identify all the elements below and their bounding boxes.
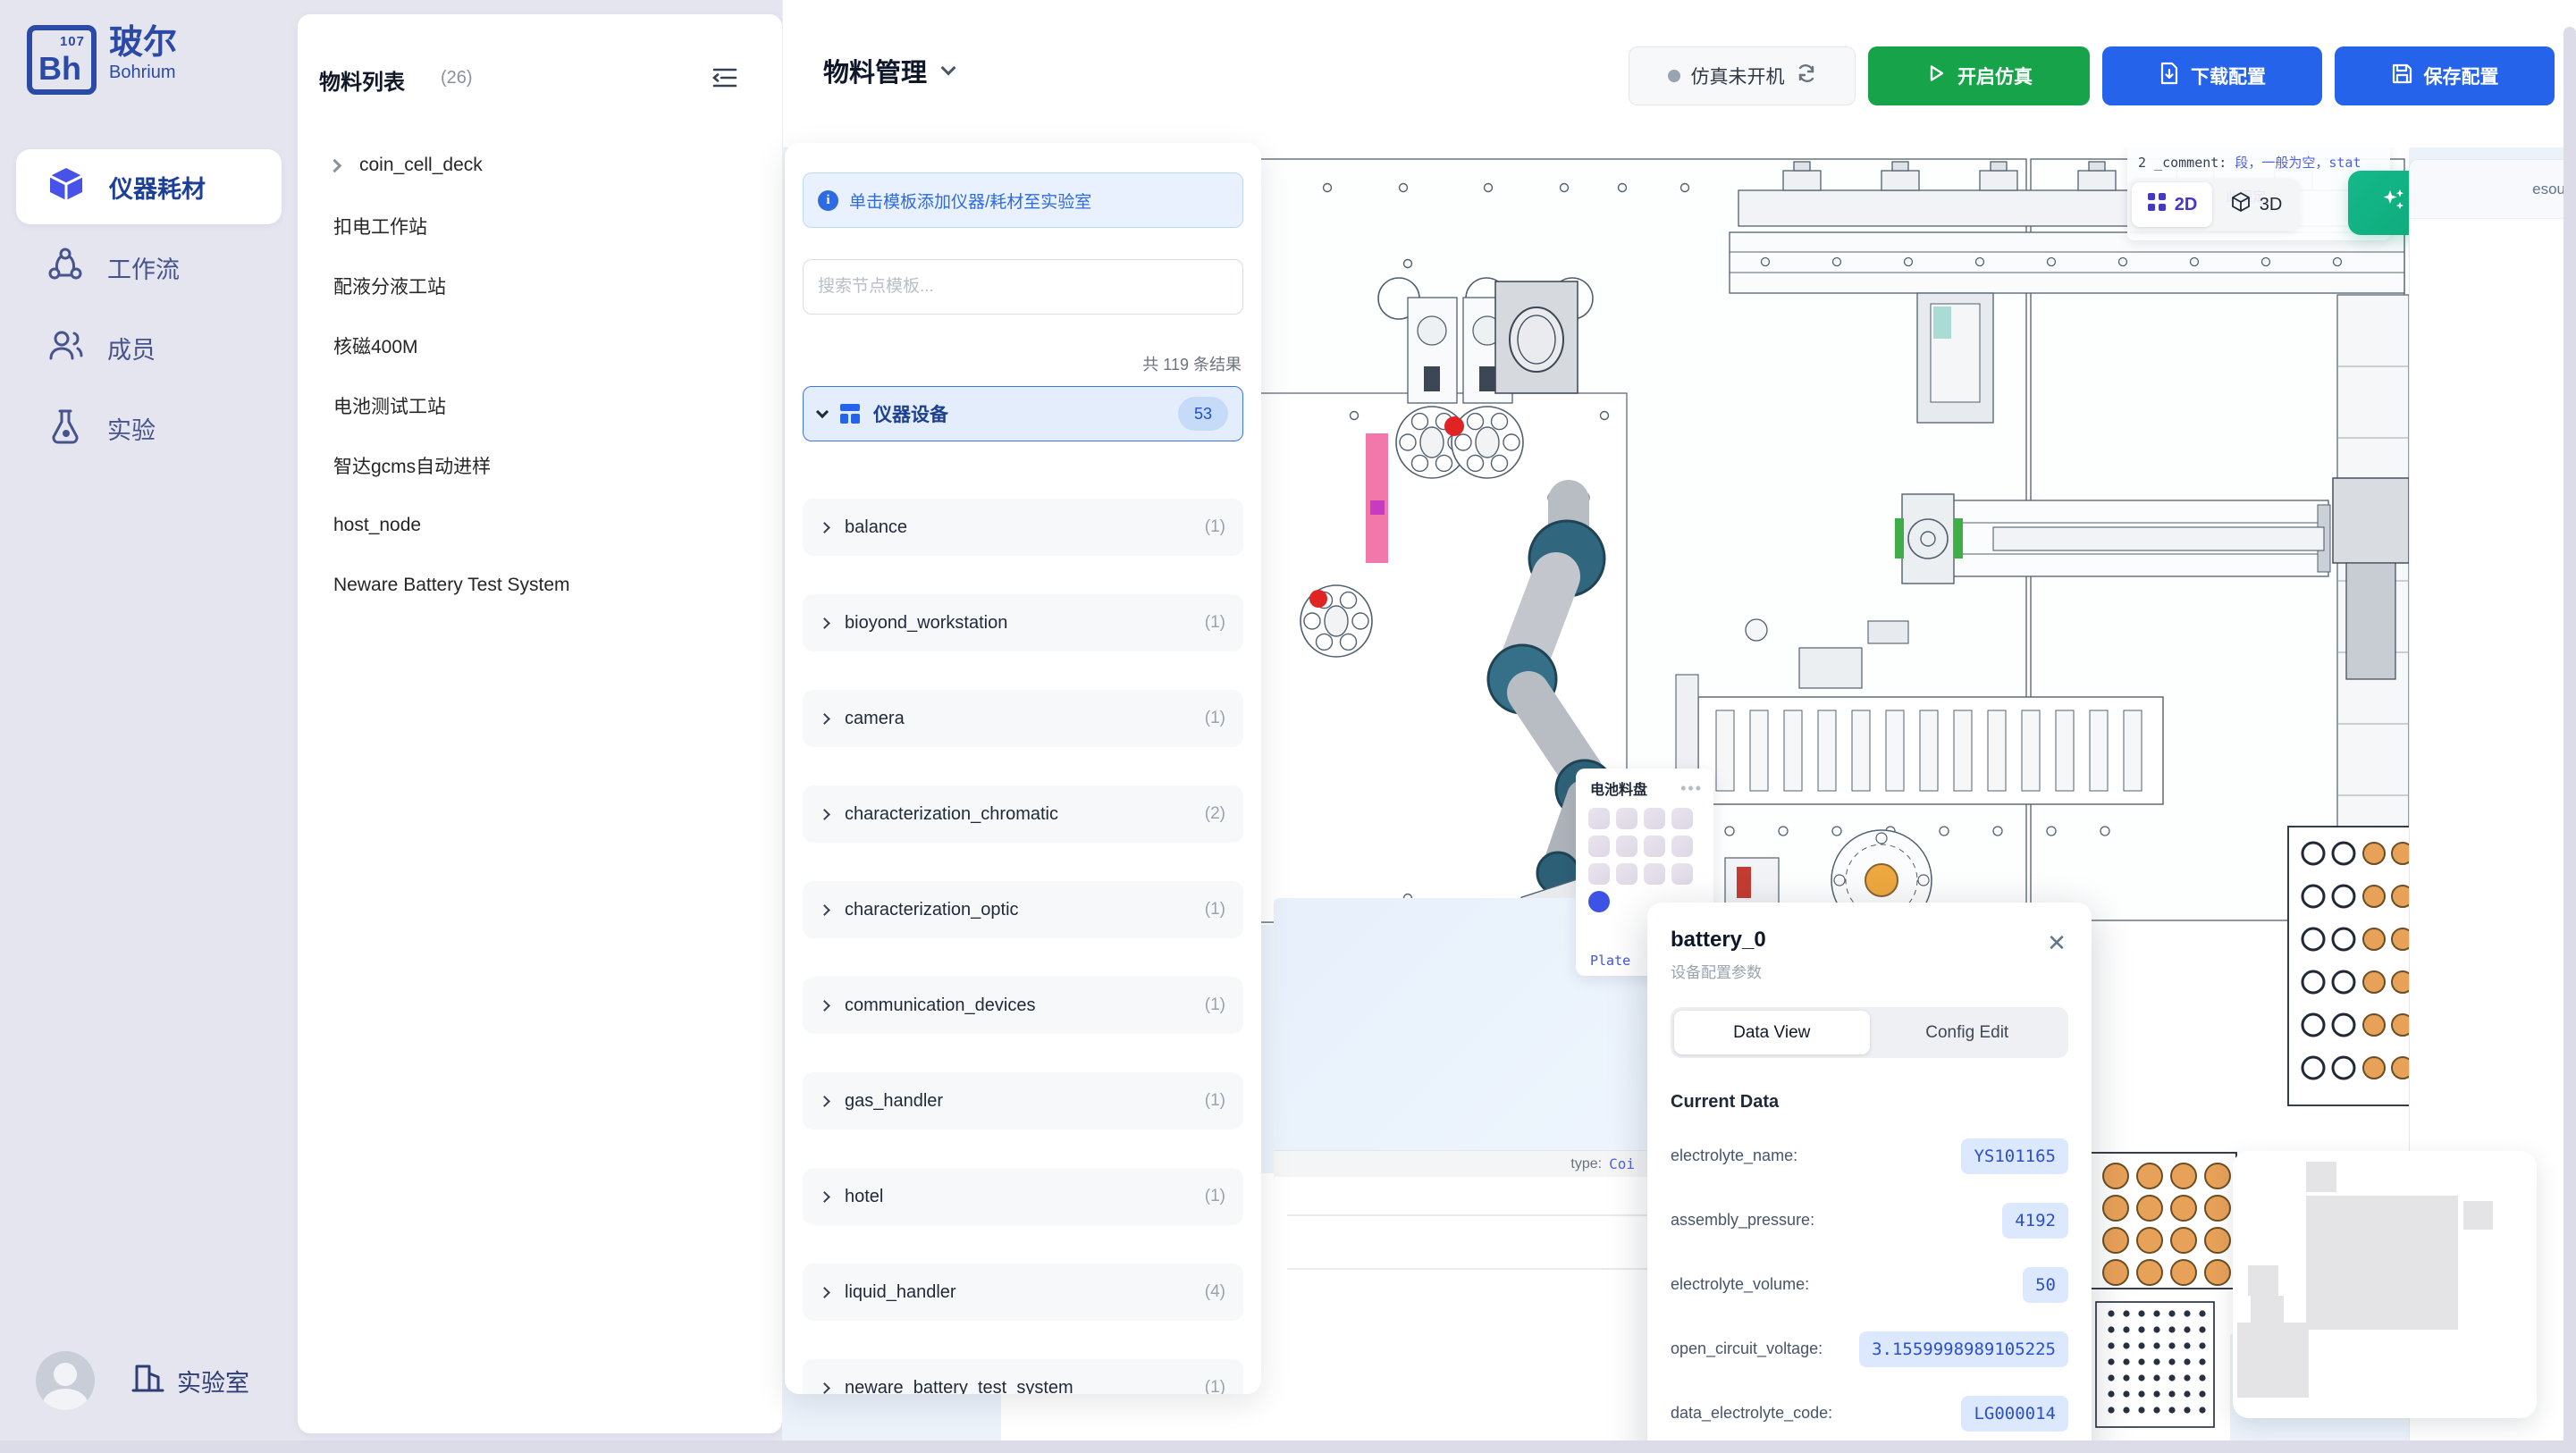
material-item-label: host_node [333, 515, 421, 536]
instruments-icon [840, 404, 860, 424]
chevron-right-icon [819, 1000, 830, 1012]
battery-slot[interactable] [1644, 808, 1665, 829]
battery-slot[interactable] [1644, 836, 1665, 857]
hint-banner: i 单击模板添加仪器/耗材至实验室 [803, 172, 1243, 228]
result-count: 共 119 条结果 [1142, 352, 1242, 375]
material-item[interactable]: 扣电工作站 [319, 207, 761, 245]
lab-link[interactable]: 实验室 [130, 1361, 249, 1401]
battery-slot[interactable] [1671, 836, 1693, 857]
sidebar-item-members[interactable]: 成员 [16, 310, 282, 385]
group-count-badge: 53 [1178, 397, 1228, 431]
material-item-label: 扣电工作站 [333, 213, 427, 239]
material-item[interactable]: Neware Battery Test System [319, 567, 761, 604]
group-label: 仪器设备 [873, 400, 1165, 427]
download-config-button[interactable]: 下载配置 [2102, 46, 2322, 105]
materials-panel: 物料列表 (26) coin_cell_deck 扣电工作站 配液分液工站 核磁… [298, 14, 782, 1433]
category-liquid-handler[interactable]: liquid_handler (4) [803, 1264, 1243, 1321]
chevron-right-icon [819, 713, 830, 725]
tab-data-view[interactable]: Data View [1674, 1011, 1870, 1054]
material-item[interactable]: 核磁400M [319, 327, 761, 365]
data-row-label: open_circuit_voltage: [1671, 1340, 1823, 1358]
category-characterization-chromatic[interactable]: characterization_chromatic (2) [803, 785, 1243, 843]
battery-slot-grid [1576, 802, 1713, 912]
sidebar-item-label: 工作流 [107, 250, 180, 285]
category-count: (1) [1205, 995, 1225, 1015]
current-data-heading: Current Data [1671, 1092, 2068, 1113]
building-icon [130, 1361, 164, 1401]
download-config-label: 下载配置 [2191, 63, 2266, 89]
tab-config-edit[interactable]: Config Edit [1870, 1011, 2066, 1054]
chevron-down-icon [941, 61, 956, 76]
status-label: 仿真未开机 [1691, 63, 1785, 89]
template-panel: i 单击模板添加仪器/耗材至实验室 共 119 条结果 仪器设备 53 bala… [785, 143, 1261, 1394]
right-panel-clipped-text: esou [2532, 181, 2565, 198]
cube-icon [46, 164, 86, 210]
refresh-icon[interactable] [1796, 63, 1817, 89]
save-config-label: 保存配置 [2424, 63, 2499, 89]
category-count: (1) [1205, 1378, 1225, 1394]
plate-label: Plate [1590, 953, 1630, 969]
sidebar-item-label: 实验 [107, 411, 156, 446]
category-label: communication_devices [845, 995, 1189, 1016]
category-camera[interactable]: camera (1) [803, 690, 1243, 747]
page-title[interactable]: 物料管理 [823, 52, 954, 89]
grid-2d-icon [2147, 192, 2167, 217]
battery-tray-title: 电池料盘 [1590, 777, 1647, 799]
category-label: balance [845, 517, 1189, 538]
category-characterization-optic[interactable]: characterization_optic (1) [803, 881, 1243, 938]
logo-symbol: Bh [38, 50, 81, 88]
view-2d-label: 2D [2175, 195, 2198, 215]
material-item[interactable]: 智达gcms自动进样 [319, 447, 761, 484]
material-item-label: coin_cell_deck [359, 155, 483, 176]
category-count: (1) [1205, 517, 1225, 537]
chevron-right-icon [819, 522, 830, 533]
material-item-label: 核磁400M [333, 332, 418, 359]
material-item-coin-cell-deck[interactable]: coin_cell_deck [319, 147, 761, 184]
info-icon: i [818, 190, 838, 211]
material-item[interactable]: 电池测试工站 [319, 387, 761, 424]
battery-slot[interactable] [1671, 863, 1693, 885]
avatar[interactable] [36, 1351, 95, 1410]
battery-slot[interactable] [1588, 808, 1610, 829]
workflow-icon [46, 246, 84, 290]
category-count: (1) [1205, 900, 1225, 920]
category-count: (2) [1205, 804, 1225, 824]
logo-title: 玻尔 [109, 25, 177, 63]
battery-slot[interactable] [1588, 836, 1610, 857]
data-row-label: assembly_pressure: [1671, 1211, 1814, 1230]
download-icon [2159, 62, 2180, 90]
lab-link-label: 实验室 [177, 1364, 249, 1398]
app-logo: 107 Bh 玻尔 Bohrium [27, 25, 177, 95]
category-count: (1) [1205, 1091, 1225, 1111]
simulation-status[interactable]: 仿真未开机 [1629, 46, 1856, 105]
data-row-value: 4192 [2002, 1203, 2068, 1239]
node-type-key: type: [1570, 1156, 1602, 1172]
view-mode-toggle: 2D 3D [2128, 179, 2300, 231]
chevron-right-icon [819, 1287, 830, 1298]
category-count: (4) [1205, 1282, 1225, 1302]
category-label: bioyond_workstation [845, 613, 1189, 634]
search-input[interactable] [803, 259, 1243, 315]
chevron-right-icon [819, 1382, 830, 1394]
logo-subtitle: Bohrium [109, 63, 177, 83]
group-instruments[interactable]: 仪器设备 53 [803, 386, 1243, 441]
save-icon [2391, 63, 2413, 90]
data-row: open_circuit_voltage: 3.1559998989105225 [1671, 1328, 2068, 1370]
view-3d-label: 3D [2260, 195, 2283, 215]
experiment-icon [46, 407, 84, 450]
sidebar-item-experiments[interactable]: 实验 [16, 391, 282, 466]
category-count: (1) [1205, 1187, 1225, 1206]
category-balance[interactable]: balance (1) [803, 499, 1243, 556]
play-icon [1925, 63, 1947, 89]
materials-count: (26) [441, 68, 473, 88]
data-row: electrolyte_name: YS101165 [1671, 1135, 2068, 1177]
view-3d-button[interactable]: 3D [2216, 182, 2296, 227]
data-row-label: electrolyte_volume: [1671, 1275, 1809, 1294]
category-label: neware_battery_test_system [845, 1378, 1189, 1395]
chevron-right-icon [819, 617, 830, 629]
hint-text: 单击模板添加仪器/耗材至实验室 [849, 189, 1091, 213]
chevron-right-icon [819, 809, 830, 820]
sidebar: 107 Bh 玻尔 Bohrium 仪器耗材 工作流 成员 [0, 0, 298, 1453]
view-2d-button[interactable]: 2D [2132, 182, 2212, 227]
tooltip-value: 段，一般为空，stat [2235, 155, 2361, 171]
materials-panel-title: 物料列表 [319, 64, 405, 96]
category-label: gas_handler [845, 1091, 1189, 1112]
data-row-value: 3.1559998989105225 [1859, 1331, 2068, 1367]
chevron-right-icon [819, 1191, 830, 1203]
data-row-value: LG000014 [1961, 1396, 2068, 1432]
page-title-text: 物料管理 [823, 52, 927, 89]
status-dot-icon [1668, 70, 1680, 82]
window-bottom-edge [0, 1440, 2576, 1453]
collapse-list-icon[interactable] [712, 66, 737, 94]
members-icon [46, 326, 84, 370]
popup-subtitle: 设备配置参数 [1671, 960, 2068, 982]
data-row-label: data_electrolyte_code: [1671, 1404, 1832, 1423]
data-row-value: YS101165 [1961, 1138, 2068, 1174]
category-communication-devices[interactable]: communication_devices (1) [803, 977, 1243, 1034]
sidebar-item-label: 仪器耗材 [109, 170, 206, 205]
category-bioyond-workstation[interactable]: bioyond_workstation (1) [803, 594, 1243, 651]
start-simulation-label: 开启仿真 [1957, 63, 2033, 89]
logo-number: 107 [60, 34, 85, 49]
battery-slot[interactable] [1671, 808, 1693, 829]
battery-slot[interactable] [1616, 808, 1637, 829]
battery-slot[interactable] [1644, 863, 1665, 885]
battery-slot[interactable] [1616, 836, 1637, 857]
data-row: electrolyte_volume: 50 [1671, 1264, 2068, 1306]
sidebar-item-label: 成员 [107, 331, 156, 365]
sidebar-menu: 仪器耗材 工作流 成员 实验 [16, 149, 282, 471]
node-type-footer: type: Coi [1274, 1150, 1647, 1177]
data-row: assembly_pressure: 4192 [1671, 1199, 2068, 1241]
category-label: hotel [845, 1187, 1189, 1207]
popup-tabs: Data View Config Edit [1671, 1007, 2068, 1058]
more-menu-icon[interactable]: ••• [1680, 779, 1703, 798]
battery-slot[interactable] [1588, 863, 1610, 885]
sidebar-item-instruments[interactable]: 仪器耗材 [16, 149, 282, 224]
close-icon[interactable]: ✕ [2041, 928, 2072, 958]
battery-config-popup: battery_0 ✕ 设备配置参数 Data View Config Edit… [1647, 903, 2092, 1453]
data-row-value: 50 [2023, 1267, 2068, 1303]
start-simulation-button[interactable]: 开启仿真 [1868, 46, 2090, 105]
scrollbar-vertical[interactable] [2563, 27, 2576, 1453]
logo-mark-icon: 107 Bh [27, 25, 97, 95]
data-row: data_electrolyte_code: LG000014 [1671, 1392, 2068, 1434]
sparkles-icon [2380, 187, 2407, 220]
tooltip-prefix: 2 [2138, 155, 2146, 171]
popup-title: battery_0 [1671, 928, 2068, 953]
category-label: liquid_handler [845, 1282, 1189, 1303]
chevron-down-icon [816, 405, 829, 417]
category-gas-handler[interactable]: gas_handler (1) [803, 1072, 1243, 1130]
material-item[interactable]: 配液分液工站 [319, 267, 761, 305]
node-type-value: Coi [1609, 1155, 1635, 1172]
material-item-label: 配液分液工站 [333, 273, 446, 299]
category-label: characterization_chromatic [845, 804, 1189, 825]
category-hotel[interactable]: hotel (1) [803, 1168, 1243, 1225]
data-row-label: electrolyte_name: [1671, 1146, 1797, 1165]
category-count: (1) [1205, 613, 1225, 633]
material-item-label: Neware Battery Test System [333, 575, 570, 596]
sidebar-item-workflow[interactable]: 工作流 [16, 230, 282, 305]
battery-slot-selected[interactable] [1588, 891, 1610, 912]
material-item[interactable]: host_node [319, 507, 761, 544]
category-count: (1) [1205, 709, 1225, 728]
cube-3d-icon [2230, 191, 2252, 218]
battery-slot[interactable] [1616, 863, 1637, 885]
category-label: camera [845, 709, 1189, 729]
save-config-button[interactable]: 保存配置 [2335, 46, 2555, 105]
category-label: characterization_optic [845, 900, 1189, 920]
topbar: 物料管理 仿真未开机 开启仿真 下载配置 保存配置 [782, 0, 2576, 147]
chevron-right-icon [819, 1096, 830, 1107]
minimap[interactable] [2233, 1151, 2537, 1418]
chevron-right-icon [819, 904, 830, 916]
chevron-right-icon[interactable] [328, 158, 342, 172]
tooltip-key: _comment: [2154, 155, 2227, 171]
material-item-label: 智达gcms自动进样 [333, 452, 491, 479]
category-neware-battery-test-system[interactable]: neware_battery_test_system (1) [803, 1359, 1243, 1394]
material-item-label: 电池测试工站 [333, 392, 446, 419]
